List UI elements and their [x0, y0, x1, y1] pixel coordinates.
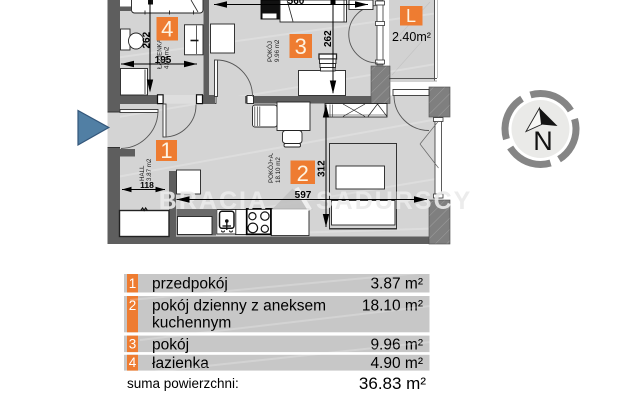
svg-text:1: 1 [129, 276, 137, 291]
svg-text:POKÓJ9.96 m2: POKÓJ9.96 m2 [267, 39, 281, 62]
svg-text:L: L [406, 6, 416, 26]
svg-text:3: 3 [129, 337, 137, 352]
svg-text:36.83 m²: 36.83 m² [359, 374, 426, 393]
svg-text:262: 262 [323, 30, 334, 47]
svg-text:312: 312 [317, 160, 328, 177]
svg-text:1: 1 [160, 138, 172, 163]
svg-text:kuchennym: kuchennym [152, 315, 231, 332]
svg-text:BRACIA: BRACIA [159, 187, 268, 215]
svg-text:262: 262 [142, 31, 153, 48]
svg-text:597: 597 [295, 190, 312, 201]
svg-text:SADURSCY: SADURSCY [316, 187, 472, 215]
svg-text:2: 2 [297, 161, 309, 186]
svg-text:pokój dzienny z aneksem: pokój dzienny z aneksem [152, 298, 326, 315]
svg-text:przedpokój: przedpokój [152, 276, 228, 293]
svg-text:N: N [533, 126, 553, 156]
svg-text:3: 3 [295, 34, 307, 59]
svg-text:2.40m²: 2.40m² [392, 30, 431, 44]
svg-text:3.87 m²: 3.87 m² [370, 276, 423, 293]
svg-text:4: 4 [129, 355, 137, 370]
svg-text:560: 560 [288, 0, 305, 7]
svg-text:4: 4 [161, 17, 173, 42]
svg-text:pokój: pokój [152, 337, 189, 354]
svg-text:suma powierzchni:: suma powierzchni: [127, 376, 239, 391]
svg-text:4.90 m²: 4.90 m² [370, 355, 423, 372]
